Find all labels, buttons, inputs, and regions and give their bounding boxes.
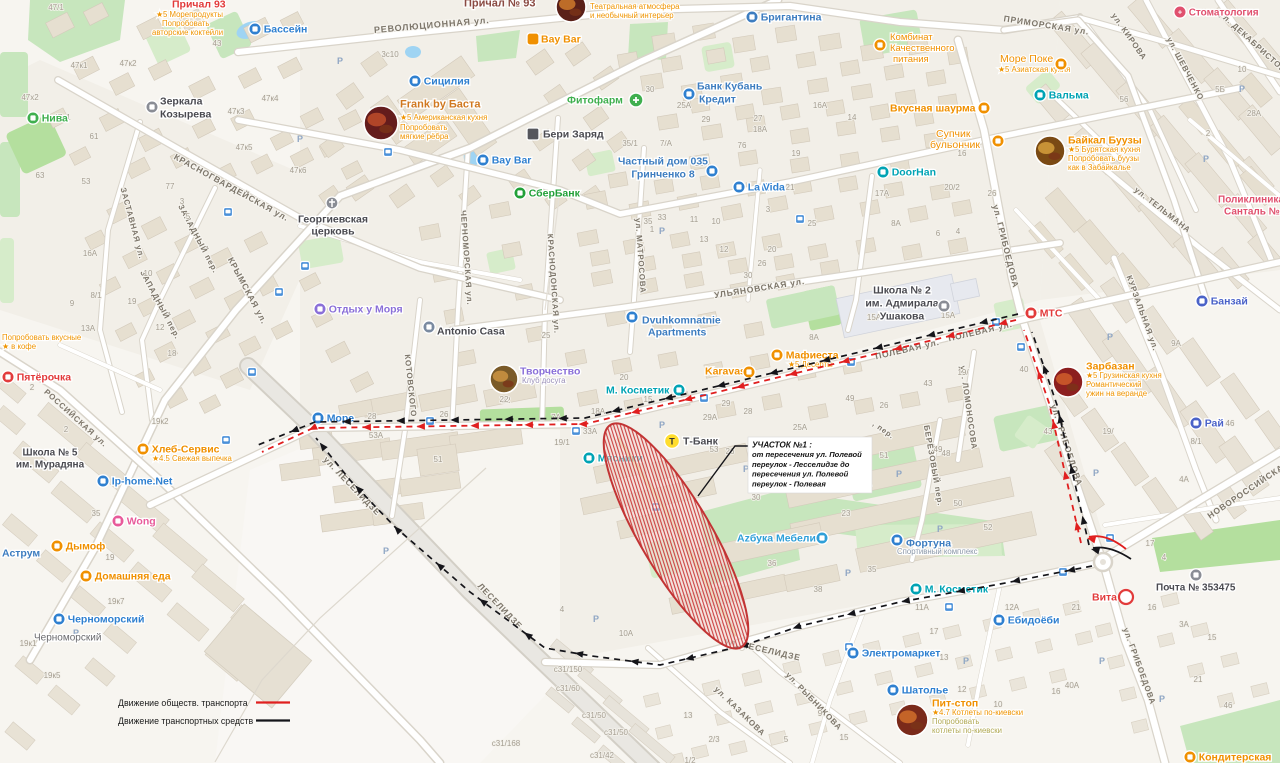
svg-text:2: 2	[64, 425, 69, 434]
svg-text:Ip-home.Net: Ip-home.Net	[112, 476, 173, 488]
svg-text:Гринченко 8: Гринченко 8	[631, 169, 694, 181]
svg-text:Клуб досуга: Клуб досуга	[522, 376, 566, 385]
svg-text:50: 50	[954, 499, 963, 508]
svg-text:Электромаркет: Электромаркет	[862, 648, 941, 660]
svg-text:17А: 17А	[875, 189, 890, 198]
svg-text:8/1: 8/1	[1190, 437, 1202, 446]
svg-text:Козырева: Козырева	[160, 109, 211, 121]
svg-text:52: 52	[984, 523, 993, 532]
svg-text:★5 Морепродукты: ★5 Морепродукты	[156, 10, 223, 19]
svg-text:46: 46	[1224, 701, 1233, 710]
svg-text:с31/60: с31/60	[556, 684, 581, 693]
svg-text:Karavas: Karavas	[705, 366, 746, 378]
svg-text:25А: 25А	[677, 101, 692, 110]
svg-text:Р: Р	[337, 56, 343, 66]
svg-text:с31/50: с31/50	[582, 711, 607, 720]
svg-text:8А: 8А	[809, 333, 819, 342]
svg-text:им. Адмирала: им. Адмирала	[865, 298, 938, 310]
svg-text:16: 16	[1052, 687, 1061, 696]
svg-text:Кредит: Кредит	[699, 94, 736, 106]
svg-text:★5 Бурятская кухня: ★5 Бурятская кухня	[1068, 145, 1140, 154]
svg-text:25А: 25А	[793, 423, 808, 432]
svg-text:13: 13	[940, 653, 949, 662]
svg-text:Поликлиника: Поликлиника	[1218, 195, 1280, 206]
svg-text:Бери Заряд: Бери Заряд	[543, 129, 604, 141]
svg-text:★ в кофе: ★ в кофе	[2, 342, 36, 351]
svg-text:переулок - Лесселидзе до: переулок - Лесселидзе до	[752, 460, 850, 469]
svg-text:46: 46	[1226, 419, 1235, 428]
svg-text:13: 13	[700, 235, 709, 244]
svg-text:49: 49	[934, 445, 943, 454]
svg-text:13А: 13А	[81, 324, 96, 333]
svg-text:Т-Банк: Т-Банк	[683, 436, 719, 448]
svg-text:77: 77	[166, 182, 175, 191]
svg-text:питания: питания	[893, 54, 929, 65]
svg-text:30: 30	[752, 493, 761, 502]
svg-text:Р: Р	[896, 469, 902, 479]
svg-text:4: 4	[560, 605, 565, 614]
svg-text:Wong: Wong	[127, 516, 156, 528]
svg-text:14: 14	[848, 113, 857, 122]
svg-text:2: 2	[30, 383, 35, 392]
svg-text:Попробовать: Попробовать	[400, 123, 448, 132]
svg-text:40А: 40А	[1065, 681, 1080, 690]
svg-text:3: 3	[180, 197, 185, 206]
svg-text:Море Поке: Море Поке	[1000, 53, 1053, 65]
svg-text:4: 4	[1162, 553, 1167, 562]
svg-text:21: 21	[1072, 603, 1081, 612]
svg-text:12: 12	[720, 245, 729, 254]
svg-text:38: 38	[814, 585, 823, 594]
svg-text:Т: Т	[669, 437, 675, 447]
svg-text:28А: 28А	[1247, 109, 1262, 118]
svg-text:5Б: 5Б	[1215, 85, 1225, 94]
svg-text:Бригантина: Бригантина	[761, 12, 822, 24]
svg-text:Школа № 2: Школа № 2	[873, 285, 931, 297]
svg-text:Зеркала: Зеркала	[160, 96, 203, 108]
svg-text:76: 76	[738, 141, 747, 150]
svg-text:17: 17	[930, 627, 939, 636]
svg-text:Спортивный комплекс: Спортивный комплекс	[897, 547, 978, 556]
svg-text:12: 12	[156, 323, 165, 332]
svg-text:8А: 8А	[891, 219, 901, 228]
svg-text:17: 17	[1146, 539, 1155, 548]
svg-text:9: 9	[70, 299, 75, 308]
svg-text:53А: 53А	[369, 431, 384, 440]
svg-text:СберБанк: СберБанк	[529, 188, 581, 200]
svg-text:Ебидоёби: Ебидоёби	[1008, 615, 1060, 627]
svg-text:19: 19	[128, 297, 137, 306]
svg-text:Георгиевская: Георгиевская	[298, 214, 368, 226]
svg-text:18А: 18А	[753, 125, 768, 134]
svg-text:63: 63	[36, 171, 45, 180]
svg-text:с31/42: с31/42	[590, 751, 615, 760]
svg-text:DoorHan: DoorHan	[892, 167, 936, 179]
svg-text:5: 5	[784, 735, 789, 744]
svg-text:Р: Р	[845, 568, 851, 578]
svg-text:15: 15	[1208, 633, 1217, 642]
svg-text:3с10: 3с10	[381, 50, 399, 59]
svg-text:Черноморский: Черноморский	[34, 633, 101, 644]
svg-text:Р: Р	[1239, 84, 1245, 94]
svg-text:25: 25	[542, 331, 551, 340]
svg-text:47к5: 47к5	[236, 143, 253, 152]
svg-text:35: 35	[868, 565, 877, 574]
svg-text:Фитофарм: Фитофарм	[567, 95, 623, 107]
svg-text:Нива: Нива	[42, 113, 68, 125]
svg-text:★4.7 Котлеты по-киевски: ★4.7 Котлеты по-киевски	[932, 708, 1023, 717]
svg-text:16А: 16А	[83, 249, 98, 258]
svg-text:29: 29	[722, 399, 731, 408]
svg-text:Р: Р	[297, 134, 303, 144]
svg-text:19: 19	[106, 553, 115, 562]
svg-text:Р: Р	[593, 614, 599, 624]
svg-text:19/1: 19/1	[554, 438, 570, 447]
svg-text:26: 26	[988, 189, 997, 198]
svg-text:7/А: 7/А	[660, 139, 673, 148]
svg-text:20: 20	[768, 245, 777, 254]
svg-text:★4.5 Свежая выпечка: ★4.5 Свежая выпечка	[152, 454, 233, 463]
svg-text:★5 Американская кухня: ★5 Американская кухня	[400, 113, 487, 122]
svg-text:Рай: Рай	[1205, 418, 1224, 430]
svg-text:16А: 16А	[813, 101, 828, 110]
svg-text:М. Косметик: М. Косметик	[925, 584, 989, 596]
svg-text:Отдых у Моря: Отдых у Моря	[329, 304, 403, 316]
svg-text:Попробовать буузы: Попробовать буузы	[1068, 154, 1139, 163]
svg-text:21: 21	[1194, 675, 1203, 684]
svg-text:8/1: 8/1	[90, 291, 102, 300]
svg-text:10: 10	[1238, 65, 1247, 74]
svg-text:Dvuhkomnatnie: Dvuhkomnatnie	[642, 315, 721, 327]
svg-text:Р: Р	[1093, 468, 1099, 478]
svg-text:53: 53	[82, 177, 91, 186]
svg-text:19к7: 19к7	[108, 597, 125, 606]
svg-text:19: 19	[792, 149, 801, 158]
svg-text:Apartments: Apartments	[648, 327, 707, 339]
svg-text:мягкие рёбра: мягкие рёбра	[400, 132, 449, 141]
svg-text:Комбинат: Комбинат	[890, 32, 933, 43]
svg-text:47к4: 47к4	[262, 94, 279, 103]
svg-text:4А: 4А	[1179, 475, 1189, 484]
svg-text:Вальма: Вальма	[1049, 90, 1089, 102]
svg-text:22: 22	[500, 395, 509, 404]
svg-text:Дымоф: Дымоф	[66, 541, 106, 553]
svg-text:от пересечения ул. Полевой: от пересечения ул. Полевой	[752, 450, 862, 459]
svg-text:13: 13	[684, 711, 693, 720]
svg-text:26: 26	[880, 401, 889, 410]
svg-text:51: 51	[434, 455, 443, 464]
svg-text:★5 Грузинская кухня: ★5 Грузинская кухня	[1086, 371, 1162, 380]
svg-text:43: 43	[924, 379, 933, 388]
svg-text:Вита: Вита	[1092, 592, 1117, 604]
svg-text:30: 30	[744, 271, 753, 280]
svg-text:2/3: 2/3	[708, 735, 720, 744]
svg-text:21: 21	[786, 183, 795, 192]
svg-text:с31/150: с31/150	[554, 665, 583, 674]
svg-text:16: 16	[1148, 603, 1157, 612]
svg-text:15: 15	[840, 733, 849, 742]
svg-text:Причал № 93: Причал № 93	[464, 0, 536, 10]
svg-text:Р: Р	[937, 524, 943, 534]
svg-text:47к2: 47к2	[120, 59, 137, 68]
svg-text:Аzбука Мебели: Аzбука Мебели	[737, 533, 816, 545]
svg-text:25: 25	[808, 219, 817, 228]
svg-text:Р: Р	[1107, 332, 1113, 342]
svg-text:+: +	[1178, 8, 1183, 17]
svg-text:Банзай: Банзай	[1211, 296, 1248, 308]
svg-text:М. Косметик: М. Косметик	[606, 385, 670, 397]
svg-text:Р: Р	[963, 656, 969, 666]
svg-text:47к6: 47к6	[290, 166, 307, 175]
svg-text:Сицилия: Сицилия	[424, 76, 470, 88]
svg-text:Черноморский: Черноморский	[68, 614, 145, 626]
svg-text:Вкусная шаурма: Вкусная шаурма	[890, 103, 976, 115]
svg-text:Школа № 5: Школа № 5	[23, 448, 78, 459]
svg-text:28: 28	[368, 412, 377, 421]
svg-text:Частный дом 035: Частный дом 035	[618, 156, 708, 168]
svg-text:35: 35	[92, 509, 101, 518]
svg-text:61: 61	[90, 132, 99, 141]
svg-text:Бассейн: Бассейн	[264, 24, 308, 36]
svg-text:28: 28	[744, 407, 753, 416]
svg-text:29: 29	[702, 115, 711, 124]
svg-text:Домашняя еда: Домашняя еда	[95, 571, 171, 583]
svg-text:Кондитерская: Кондитерская	[1199, 752, 1272, 763]
svg-text:47/1: 47/1	[48, 3, 64, 12]
svg-text:авторские коктейли: авторские коктейли	[152, 28, 223, 37]
svg-text:Банк Кубань: Банк Кубань	[697, 81, 763, 93]
svg-text:Движение транспортных средств: Движение транспортных средств	[118, 716, 253, 726]
svg-text:18: 18	[168, 349, 177, 358]
svg-text:бульончик: бульончик	[930, 139, 980, 151]
svg-text:12А: 12А	[1005, 603, 1020, 612]
svg-text:Antonio Casa: Antonio Casa	[437, 326, 505, 338]
svg-text:9: 9	[818, 709, 823, 718]
svg-text:Причал 93: Причал 93	[172, 0, 226, 11]
svg-text:26: 26	[758, 259, 767, 268]
svg-text:47к1: 47к1	[71, 61, 88, 70]
svg-text:19/: 19/	[1102, 427, 1114, 436]
svg-text:как в Забайкалье: как в Забайкалье	[1068, 163, 1131, 172]
svg-text:47х2: 47х2	[21, 93, 39, 102]
svg-text:11: 11	[690, 215, 699, 224]
svg-text:36: 36	[768, 559, 777, 568]
svg-text:Попробовать: Попробовать	[932, 717, 980, 726]
svg-text:48: 48	[942, 449, 951, 458]
svg-text:33А: 33А	[583, 427, 598, 436]
svg-text:30: 30	[646, 85, 655, 94]
svg-text:УЧАСТОК №1 :: УЧАСТОК №1 :	[752, 441, 812, 450]
svg-text:La Vida: La Vida	[748, 182, 785, 194]
svg-text:40: 40	[1020, 365, 1029, 374]
svg-text:56: 56	[1120, 95, 1129, 104]
svg-text:Театральная атмосфера: Театральная атмосфера	[590, 2, 680, 11]
svg-text:котлеты по-киевски: котлеты по-киевски	[932, 726, 1002, 735]
svg-text:7А: 7А	[551, 413, 561, 422]
svg-text:пересечения ул. Полевой: пересечения ул. Полевой	[752, 470, 849, 479]
svg-text:19/: 19/	[957, 368, 969, 377]
svg-text:26: 26	[440, 410, 449, 419]
svg-text:с31/168: с31/168	[492, 739, 521, 748]
svg-text:27: 27	[754, 114, 763, 123]
svg-text:6: 6	[936, 229, 941, 238]
svg-text:43: 43	[1044, 427, 1053, 436]
svg-text:51: 51	[880, 451, 889, 460]
svg-text:Санталь №: Санталь №	[1224, 207, 1280, 218]
svg-text:35/1: 35/1	[622, 139, 638, 148]
svg-text:2: 2	[1206, 129, 1211, 138]
svg-text:церковь: церковь	[311, 226, 355, 238]
svg-text:Р: Р	[1099, 656, 1105, 666]
svg-text:33: 33	[658, 213, 667, 222]
svg-text:ужин на веранде: ужин на веранде	[1086, 389, 1147, 398]
svg-text:12: 12	[958, 685, 967, 694]
svg-text:Р: Р	[659, 226, 665, 236]
svg-text:Bay Bar: Bay Bar	[492, 155, 532, 167]
svg-text:49: 49	[846, 394, 855, 403]
svg-text:Р: Р	[1203, 154, 1209, 164]
svg-text:20: 20	[620, 373, 629, 382]
svg-text:43: 43	[213, 39, 222, 48]
svg-text:19к2: 19к2	[152, 417, 169, 426]
svg-text:Шатолье: Шатолье	[902, 685, 949, 697]
svg-text:Frank by Баста: Frank by Баста	[400, 99, 481, 111]
svg-text:Ушакова: Ушакова	[880, 311, 925, 323]
svg-text:Аструм: Аструм	[2, 548, 40, 560]
svg-text:Р: Р	[659, 420, 665, 430]
svg-text:10: 10	[144, 269, 153, 278]
svg-text:Пятёрочка: Пятёрочка	[17, 372, 72, 384]
svg-text:1: 1	[650, 225, 655, 234]
svg-text:переулок - Полевая: переулок - Полевая	[752, 479, 826, 488]
svg-text:10: 10	[712, 217, 721, 226]
svg-text:Попробовать вкусные: Попробовать вкусные	[2, 333, 81, 342]
svg-text:Р: Р	[383, 546, 389, 556]
svg-text:3: 3	[766, 205, 771, 214]
svg-text:Р: Р	[1159, 694, 1165, 704]
svg-text:Bay Bar: Bay Bar	[541, 34, 581, 46]
svg-text:3А: 3А	[1179, 620, 1189, 629]
svg-text:МТС: МТС	[1040, 308, 1063, 320]
svg-text:11А: 11А	[915, 603, 929, 612]
svg-text:Качественного: Качественного	[890, 43, 954, 54]
svg-text:с31/50: с31/50	[604, 728, 629, 737]
svg-text:Романтический: Романтический	[1086, 380, 1142, 389]
svg-text:Стоматология: Стоматология	[1189, 8, 1259, 19]
svg-text:10А: 10А	[619, 629, 634, 638]
svg-text:Движение обществ. транспорта: Движение обществ. транспорта	[118, 698, 248, 708]
svg-text:5: 5	[186, 212, 191, 221]
svg-text:29А: 29А	[703, 413, 718, 422]
svg-text:4: 4	[956, 227, 961, 236]
svg-text:и необычный интерьер: и необычный интерьер	[590, 11, 674, 20]
svg-text:им. Мурадяна: им. Мурадяна	[16, 460, 85, 471]
svg-text:20/2: 20/2	[944, 183, 960, 192]
svg-text:47к3: 47к3	[228, 107, 245, 116]
svg-text:Попробовать: Попробовать	[162, 19, 210, 28]
svg-text:19к5: 19к5	[44, 671, 61, 680]
svg-text:9А: 9А	[1171, 339, 1181, 348]
svg-text:23: 23	[842, 509, 851, 518]
svg-text:1/2: 1/2	[684, 756, 696, 763]
svg-text:Почта № 353475: Почта № 353475	[1156, 583, 1236, 594]
